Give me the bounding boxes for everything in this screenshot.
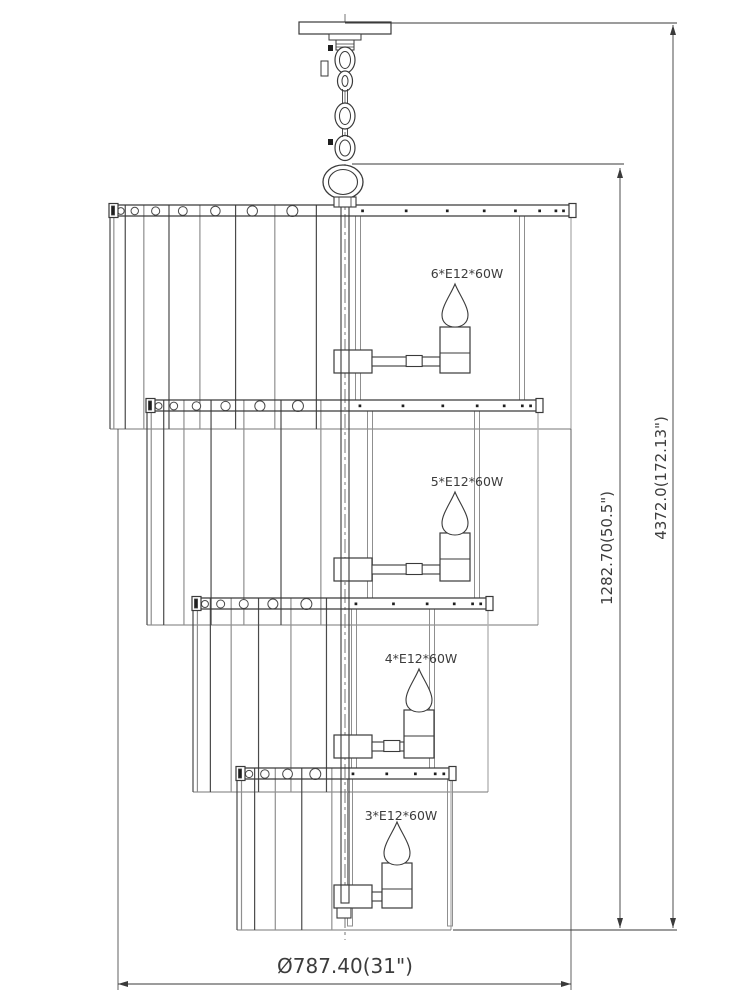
tier-1-support-rod-right (520, 216, 525, 400)
tier-1-rivet (483, 210, 486, 213)
tier-2-rivet (521, 405, 524, 408)
tier-2-slat-hole (192, 402, 201, 411)
tier-3-rivet (479, 603, 482, 606)
tier-3 (192, 597, 493, 793)
tier-1-rivet (538, 210, 541, 213)
tier-2-slat-hole (221, 401, 230, 410)
tier-2-candle-holder (440, 533, 470, 581)
overall-height-dimension-text: 4372.0(172.13") (652, 416, 670, 540)
chain-link (335, 103, 355, 129)
tier-1-slat-hole (178, 207, 187, 216)
tier-4-slat-hole (310, 769, 321, 780)
tier-3-ring-right-cap (486, 597, 493, 611)
tier-3-slat-hole (217, 600, 225, 608)
ceiling-mount-and-chain (299, 22, 391, 207)
chain-link (338, 71, 353, 91)
tier-3-rivet (453, 603, 456, 606)
chain-screw (328, 45, 333, 51)
tier-2 (146, 399, 543, 626)
tier-4-slat-hole (261, 770, 270, 779)
tier-4-rivet (434, 773, 437, 776)
canopy-collar (329, 34, 361, 40)
tier-2-rivet (402, 405, 405, 408)
dimension-arrow (617, 168, 623, 178)
tier-3-arm-joint (384, 741, 400, 752)
tier-1-slat-hole (247, 206, 257, 216)
tier-1-rivet (514, 210, 517, 213)
hanging-ring-inner (329, 170, 358, 195)
tier-2-slat-hole (255, 401, 265, 411)
tier-2-slat-hole (155, 403, 162, 410)
tier-1-candle-holder (440, 327, 470, 373)
tier-2-rivet (476, 405, 479, 408)
tier-1-arm-joint (406, 356, 422, 367)
tier-1-rivet (562, 210, 565, 213)
tier-4-candle-holder (382, 863, 412, 908)
tier-3-ring-left-cap-pin (195, 599, 198, 608)
tier-2-bulb-spec-label: 5*E12*60W (431, 474, 504, 489)
tier-4-rivet (352, 773, 355, 776)
tier-3-slat-hole (268, 599, 278, 609)
tier-1-rivet (405, 210, 408, 213)
tier-4 (236, 767, 456, 931)
tier-1-ring-right-cap (569, 204, 576, 218)
ring-neck (334, 197, 356, 207)
tier-4-ring-left-cap-pin (239, 769, 242, 778)
tier-2-column-hub (334, 558, 372, 581)
tier-2-rivet (529, 405, 532, 408)
tier-1-column-hub (334, 350, 372, 373)
chain-link (335, 47, 355, 73)
tier-1-bulb (442, 284, 468, 327)
dimension-arrow (670, 25, 676, 35)
dimension-arrow (670, 918, 676, 928)
tier-1-rivet (446, 210, 449, 213)
tier-4-slat-hole (245, 770, 252, 777)
body-height-dimension-text: 1282.70(50.5") (598, 491, 616, 605)
tier-1-slat-hole (152, 207, 160, 215)
diameter-dimension-text: Ø787.40(31") (277, 954, 413, 978)
tier-2-slat-hole (170, 402, 178, 410)
tier-1-rivet (361, 210, 364, 213)
tier-3-candle-holder (404, 710, 434, 758)
tier-4-rivet (442, 773, 445, 776)
tier-4-bulb-arm (372, 892, 382, 901)
tier-4-rivet (414, 773, 417, 776)
tier-2-ring-left-cap-pin (149, 401, 152, 410)
tier-3-rivet (392, 603, 395, 606)
chain-side-hook (321, 61, 328, 76)
tier-1-slat-hole (287, 206, 298, 217)
tier-3-bulb (406, 669, 432, 712)
tier-3-rivet (426, 603, 429, 606)
dimension-arrow (118, 981, 128, 987)
tier-2-bulb (442, 492, 468, 535)
tier-4-rivet (385, 773, 388, 776)
column-finial (337, 908, 351, 918)
tier-4-column-hub (334, 885, 372, 908)
chandelier-diagram: 6*E12*60W 5*E12*60W 4*E12*60W 3*E12*60W … (0, 0, 750, 1000)
tier-3-slat-hole (301, 599, 312, 610)
tier-4-ring-right-cap (449, 767, 456, 781)
tier-2-rivet (441, 405, 444, 408)
tier-2-rivet (359, 405, 362, 408)
tier-3-slat-hole (239, 600, 248, 609)
tier-2-arm-joint (406, 564, 422, 575)
tier-3-bulb-spec-label: 4*E12*60W (385, 651, 458, 666)
tier-3-slat-hole (201, 601, 208, 608)
dimension-arrow (561, 981, 571, 987)
chain-screw (328, 139, 333, 145)
tier-2-support-rod-right (475, 411, 480, 598)
chain-link (335, 136, 355, 161)
tier-4-bulb-spec-label: 3*E12*60W (365, 808, 438, 823)
tier-4-support-rod-right (448, 779, 453, 926)
ceiling-canopy (299, 22, 391, 34)
tier-1-rivet (555, 210, 558, 213)
tier-2-rivet (503, 405, 506, 408)
tier-1-bulb-spec-label: 6*E12*60W (431, 266, 504, 281)
tier-4-bulb (384, 822, 410, 865)
tier-3-rivet (355, 603, 358, 606)
tier-1 (109, 204, 576, 430)
chandelier-technical-drawing-page: 6*E12*60W 5*E12*60W 4*E12*60W 3*E12*60W … (0, 0, 750, 1000)
tier-2-ring-right-cap (536, 399, 543, 413)
tier-3-column-hub (334, 735, 372, 758)
dimension-arrow (617, 918, 623, 928)
tier-3-rivet (471, 603, 474, 606)
tier-1-ring-left-cap-pin (112, 206, 115, 215)
tier-1-slat-hole (131, 207, 138, 214)
tier-4-slat-hole (283, 769, 293, 779)
tier-2-slat-hole (292, 401, 303, 412)
tier-1-slat-hole (211, 206, 221, 216)
